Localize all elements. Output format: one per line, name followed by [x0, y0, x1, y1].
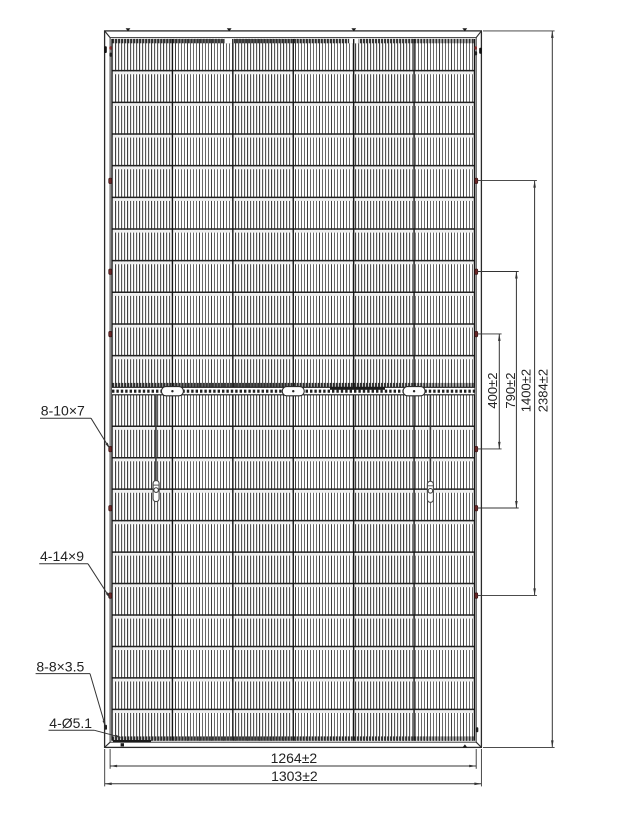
svg-text:8-8×3.5: 8-8×3.5	[36, 658, 84, 674]
svg-text:1303±2: 1303±2	[271, 768, 318, 784]
svg-text:1400±2: 1400±2	[518, 369, 533, 412]
svg-text:4-14×9: 4-14×9	[40, 548, 84, 564]
svg-text:1264±2: 1264±2	[271, 750, 318, 766]
svg-text:8-10×7: 8-10×7	[41, 403, 85, 419]
svg-text:400±2: 400±2	[485, 373, 500, 409]
svg-text:2384±2: 2384±2	[535, 369, 550, 412]
svg-text:790±2: 790±2	[503, 373, 518, 409]
svg-text:4-Ø5.1: 4-Ø5.1	[49, 715, 92, 731]
